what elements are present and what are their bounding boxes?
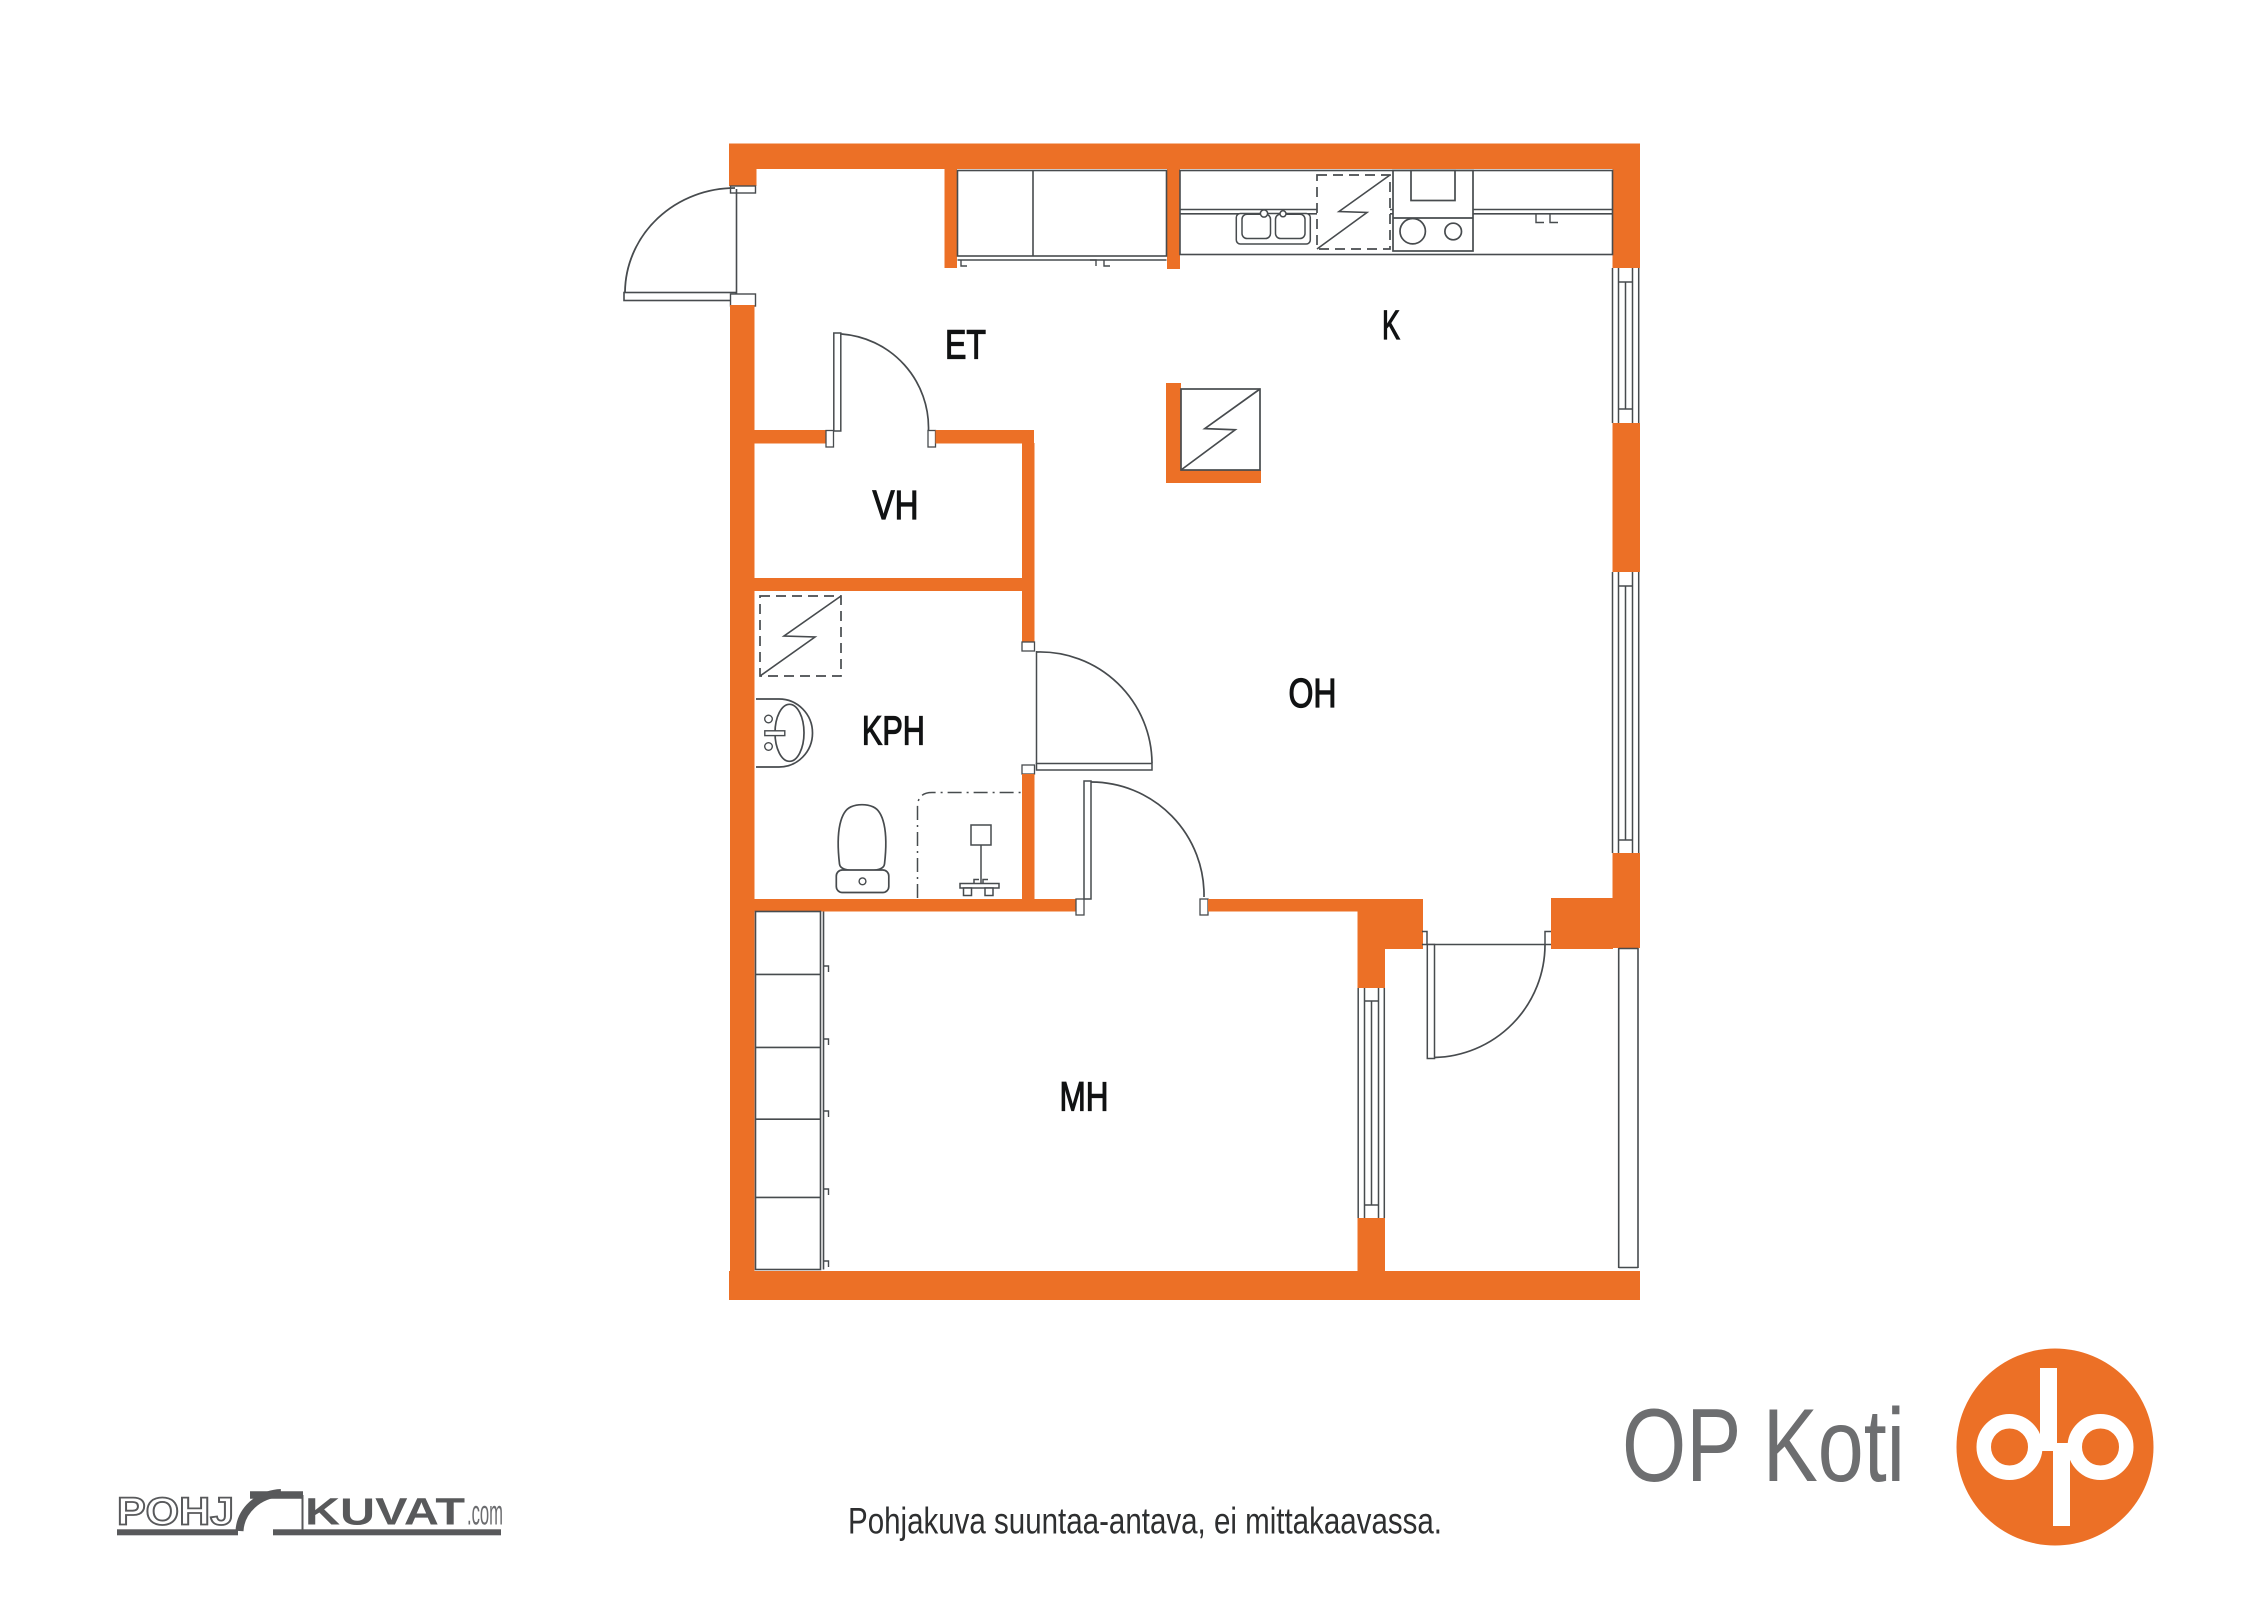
svg-text:Pohjakuva suuntaa-antava, ei m: Pohjakuva suuntaa-antava, ei mittakaavas…	[848, 1501, 1442, 1542]
svg-text:.com: .com	[467, 1494, 503, 1533]
svg-text:KPH: KPH	[862, 708, 925, 754]
svg-text:ET: ET	[945, 322, 986, 368]
svg-text:POHJ: POHJ	[117, 1491, 234, 1534]
svg-text:MH: MH	[1060, 1074, 1109, 1120]
svg-text:VH: VH	[873, 482, 919, 528]
svg-text:OP Koti: OP Koti	[1622, 1388, 1905, 1504]
svg-text:K: K	[1382, 302, 1400, 348]
svg-text:OH: OH	[1289, 670, 1337, 716]
svg-text:KUVAT: KUVAT	[305, 1492, 465, 1534]
